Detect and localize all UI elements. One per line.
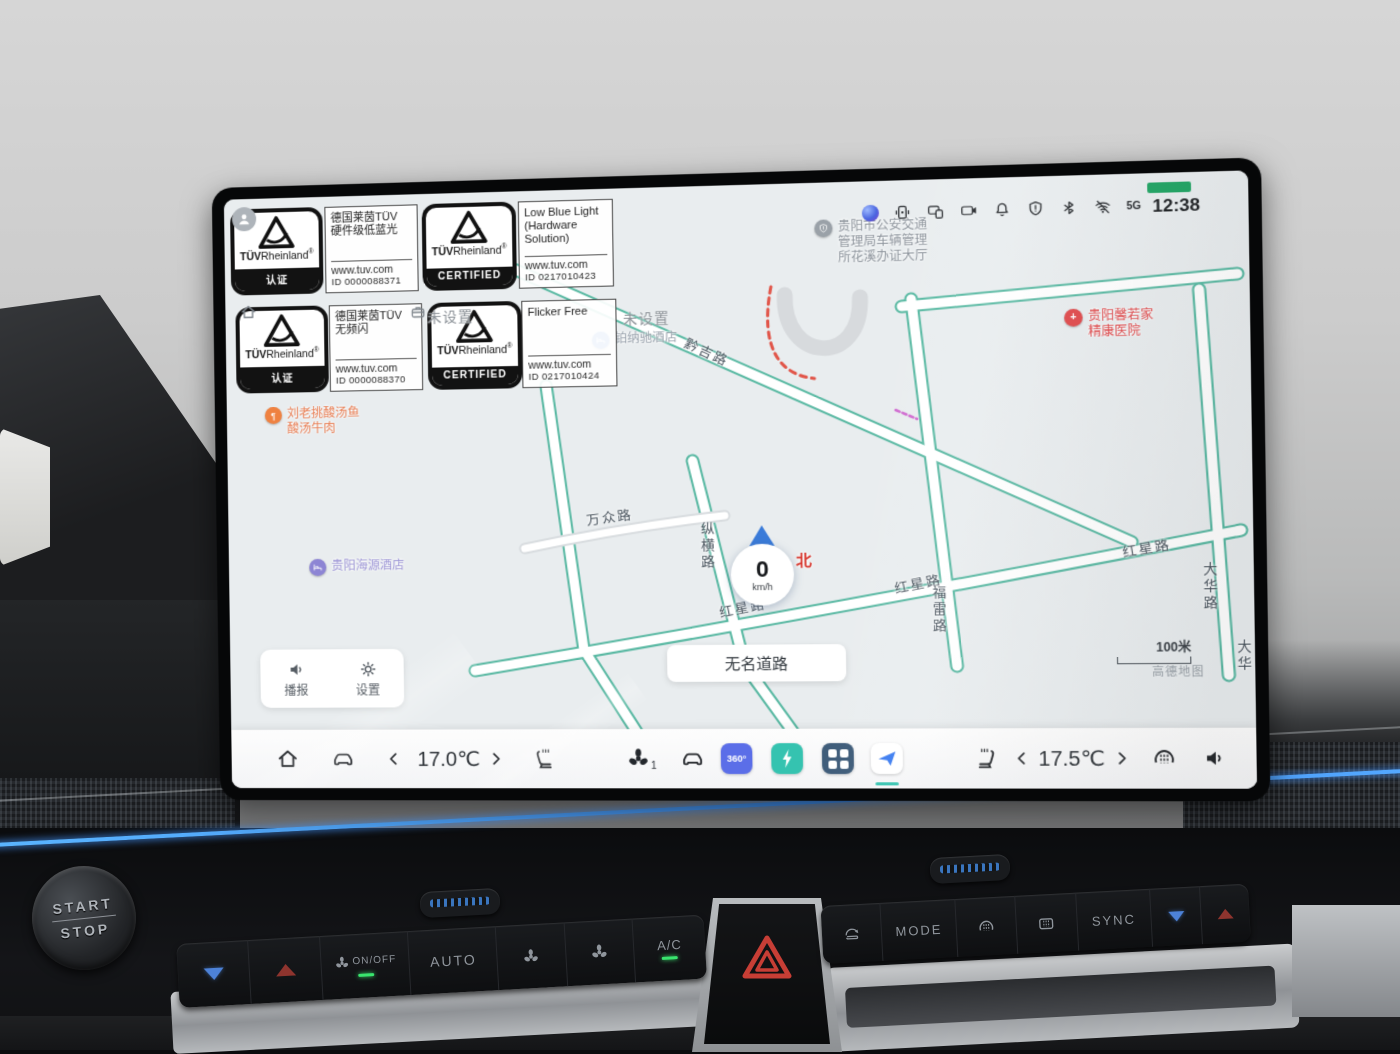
notification-bell-icon (992, 200, 1012, 219)
bolt-icon (780, 749, 794, 768)
tuv-triangle-icon (263, 313, 301, 348)
screen-cast-icon (925, 202, 945, 221)
defrost-button[interactable] (1151, 728, 1178, 789)
road-label: 大华 (1233, 639, 1254, 673)
vent-thumbwheel-right[interactable] (929, 854, 1010, 884)
recirculation-button[interactable] (820, 903, 883, 964)
home-shortcut-status[interactable]: 未设置 (427, 306, 473, 327)
compass-north: 北 (796, 550, 812, 572)
tuv-badge-lowbluelight-en: TÜVRheinland® CERTIFIED (422, 202, 517, 292)
temp-up-button[interactable] (248, 936, 324, 1004)
cert-panel: Flicker Free www.tuv.com ID 0217010424 (521, 299, 617, 389)
current-road-pill: 无名道路 (667, 644, 846, 682)
passenger-seat-heat-button[interactable] (973, 728, 1000, 788)
poi-police-station[interactable]: 贵阳市公安交通 管理局车辆管理 所花溪办证大厅 (814, 217, 927, 266)
vehicle-button[interactable] (330, 730, 357, 788)
driver-temp-down-button[interactable] (384, 730, 403, 789)
cabin-scene: 黔吉路 万众路 纵横路 红星路 红星路 红星路 福雷路 大华路 大华 贵阳市公安… (0, 0, 1400, 1050)
passenger-temp-up-hard-button[interactable] (1200, 884, 1251, 944)
cert-panel: 德国莱茵TÜV 硬件级低蓝光 www.tuv.com ID 0000088371 (324, 204, 418, 293)
screen-content[interactable]: 黔吉路 万众路 纵横路 红星路 红星路 红星路 福雷路 大华路 大华 贵阳市公安… (224, 170, 1257, 788)
vent-mode-button[interactable] (496, 922, 568, 990)
signal-5g-icon: 5G (1126, 200, 1141, 212)
security-shield-icon (1025, 199, 1045, 218)
road-label: 纵横路 (697, 522, 718, 571)
clock: 12:38 (1152, 195, 1200, 217)
fan-onoff-button[interactable]: ON/OFF (320, 931, 411, 1000)
driver-temp-up-button[interactable] (486, 729, 505, 788)
mode-button[interactable]: MODE (881, 899, 958, 961)
broadcast-button[interactable]: 播报 (260, 649, 332, 708)
settings-label: 设置 (356, 681, 381, 698)
map-scale: 100米 (1117, 638, 1192, 665)
rear-defrost-button[interactable] (1015, 893, 1078, 954)
tuv-triangle-icon (449, 209, 488, 244)
passenger-temp-up-button[interactable] (1111, 728, 1131, 789)
voice-assistant-icon (861, 205, 878, 222)
home-button[interactable] (275, 730, 300, 788)
badge-mark: 认证 (235, 267, 320, 291)
wifi-off-icon (1092, 197, 1112, 216)
side-mirror (0, 428, 50, 566)
user-avatar-icon[interactable] (232, 207, 256, 232)
app-energy[interactable] (771, 729, 804, 789)
hotel-icon (309, 559, 326, 576)
dashcam-icon (959, 201, 979, 220)
road-label: 福雷路 (928, 585, 949, 635)
fan-level: 1 (651, 761, 657, 772)
front-defrost-button[interactable] (955, 896, 1018, 957)
tuv-triangle-icon (257, 215, 295, 250)
vehicle-position-marker: 0 km/h (728, 525, 797, 612)
vehicle-speed: 0 (756, 558, 769, 581)
volume-button[interactable] (1201, 728, 1228, 789)
work-shortcut-status[interactable]: 未设置 (623, 308, 670, 329)
broadcast-label: 播报 (284, 681, 308, 698)
fan-button[interactable] (564, 919, 636, 987)
driver-seat-heat-button[interactable] (531, 729, 557, 788)
remote-key-icon (892, 203, 911, 222)
poi-hospital[interactable]: + 贵阳馨若家 精康医院 (1064, 307, 1154, 340)
badge-mark: 认证 (240, 366, 325, 390)
hospital-cross-icon: + (1064, 309, 1083, 327)
ac-button[interactable]: A/C (632, 915, 707, 983)
government-icon (814, 219, 832, 237)
hazard-button[interactable] (704, 904, 830, 1044)
poi-hotel-haiyuan[interactable]: 贵阳海源酒店 (309, 558, 404, 576)
bluetooth-icon (1059, 198, 1079, 217)
app-launcher[interactable] (822, 729, 855, 789)
badge-mark: CERTIFIED (432, 366, 518, 386)
restaurant-icon: ¶ (265, 407, 282, 424)
temp-down-button[interactable] (176, 940, 252, 1008)
driver-temperature[interactable]: 17.0℃ (413, 729, 485, 788)
poi-restaurant[interactable]: ¶ 刘老挑酸汤鱼 酸汤牛肉 (265, 405, 360, 437)
app-360-camera[interactable]: 360° (720, 729, 752, 789)
work-shortcut-icon[interactable] (409, 303, 428, 322)
fan-speed-button[interactable]: 1 (627, 729, 658, 788)
recording-indicator (1147, 181, 1191, 193)
air-circulation-button[interactable] (679, 729, 707, 788)
hazard-triangle-icon (739, 930, 795, 986)
cert-panel: Low Blue Light (Hardware Solution) www.t… (518, 199, 614, 289)
infotainment-display: 黔吉路 万众路 纵横路 红星路 红星路 红星路 福雷路 大华路 大华 贵阳市公安… (212, 157, 1271, 801)
active-app-indicator (875, 782, 898, 785)
sync-button[interactable]: SYNC (1076, 889, 1153, 951)
bottom-dock: 17.0℃ 1 360° (231, 728, 1257, 789)
passenger-temp-down-button[interactable] (1012, 728, 1032, 788)
app-navigation-active[interactable] (870, 729, 903, 789)
auto-button[interactable]: AUTO (408, 926, 499, 995)
map-settings-button[interactable]: 设置 (332, 649, 405, 708)
lower-trim-corner (1292, 905, 1400, 1017)
passenger-temp-down-hard-button[interactable] (1150, 886, 1203, 947)
road-label: 大华路 (1199, 562, 1221, 613)
passenger-temperature[interactable]: 17.5℃ (1033, 728, 1110, 789)
map-control-panel: 播报 设置 (260, 649, 404, 708)
badge-mark: CERTIFIED (427, 267, 513, 287)
speed-unit: km/h (752, 581, 773, 591)
grid-icon (828, 749, 848, 769)
map-attribution: 高德地图 (1152, 663, 1205, 680)
vent-thumbwheel-left[interactable] (419, 888, 500, 918)
home-shortcut-icon[interactable] (239, 303, 257, 321)
